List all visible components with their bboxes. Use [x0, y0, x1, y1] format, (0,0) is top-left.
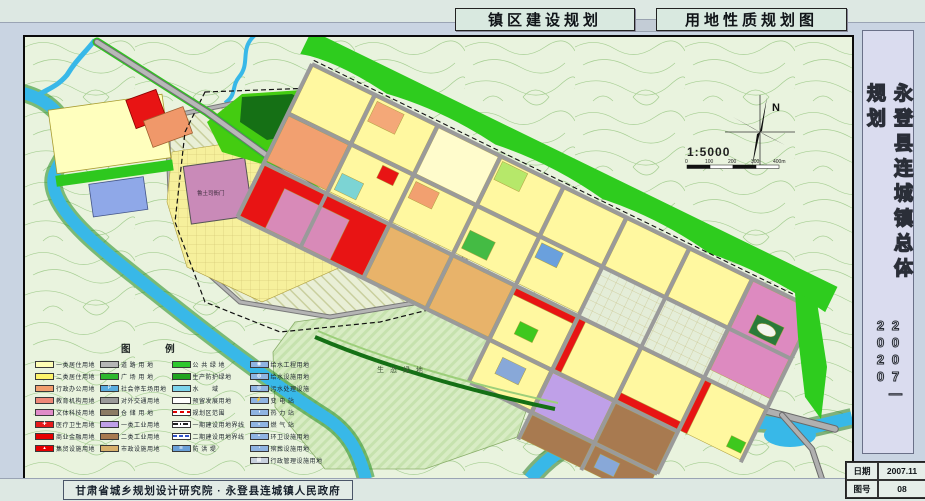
legend-label: 燃 气 站	[271, 420, 295, 429]
legend-columns: 一类居住用地二类居住用地行政办公用地教育机构用地文体科技用地✚医疗卫生用地商业金…	[35, 359, 335, 465]
legend-swatch: ◓	[250, 433, 269, 440]
sheet-value: 08	[878, 480, 925, 498]
legend-swatch: ▦	[250, 457, 269, 464]
legend-item: 文体科技用地	[35, 407, 95, 417]
legend-column: ◉给水工程用地◍给水设施用地◎污水处理设施⚡变 电 站◑热 力 站◒燃 气 站◓…	[250, 359, 323, 465]
legend-swatch	[172, 433, 191, 440]
legend-label: 热 力 站	[271, 408, 295, 417]
legend-column: 一类居住用地二类居住用地行政办公用地教育机构用地文体科技用地✚医疗卫生用地商业金…	[35, 359, 95, 465]
legend-item: 仓 储 用 地	[100, 407, 167, 417]
legend-item: 教育机构用地	[35, 395, 95, 405]
legend-swatch: ◒	[250, 421, 269, 428]
legend-label: 防 洪 堤	[193, 444, 217, 453]
legend-swatch: ◉	[250, 361, 269, 368]
legend-swatch	[100, 421, 119, 428]
legend-item: ◎污水处理设施	[250, 383, 323, 393]
sidebar: 永登县连城镇总体规划 2007—2020	[862, 30, 914, 454]
legend-label: 殡葬设施用地	[271, 444, 310, 453]
legend-label: 一类居住用地	[56, 360, 95, 369]
legend-swatch	[100, 361, 119, 368]
legend-label: 文体科技用地	[56, 408, 95, 417]
plan-period: 2007—2020	[873, 318, 903, 453]
legend-item: 市政设施用地	[100, 443, 167, 453]
legend-swatch: ◑	[250, 409, 269, 416]
legend-label: 社会停车场用地	[121, 384, 167, 393]
legend-column: 道 路 用 地广 场 用 地P社会停车场用地对外交通用地仓 储 用 地一类工业用…	[100, 359, 167, 465]
legend-item: ◍给水设施用地	[250, 371, 323, 381]
legend-item: 一类居住用地	[35, 359, 95, 369]
legend-label: 预留发展用地	[193, 396, 232, 405]
legend-swatch: ▴	[35, 445, 54, 452]
legend-item: 二类居住用地	[35, 371, 95, 381]
legend-swatch	[100, 409, 119, 416]
legend-item: 商业金融用地	[35, 431, 95, 441]
legend-swatch	[100, 433, 119, 440]
legend-swatch	[100, 397, 119, 404]
scale-tick: 0	[685, 159, 688, 165]
scale-ratio: 1:5000	[687, 145, 730, 159]
legend-label: 广 场 用 地	[121, 372, 154, 381]
legend-swatch	[172, 409, 191, 416]
credit-box: 甘肃省城乡规划设计研究院 · 永登县连城镇人民政府	[63, 480, 353, 500]
page-title-right: 用地性质规划图	[656, 8, 847, 31]
legend-label: 行政管理设施用地	[271, 456, 323, 465]
legend-swatch: ◔	[250, 445, 269, 452]
legend-item: ◓环卫设施用地	[250, 431, 323, 441]
legend-swatch	[100, 445, 119, 452]
legend-label: 二期建设用地界线	[193, 432, 245, 441]
scale-tick: 200	[728, 159, 737, 165]
legend-item: 公 共 绿 地	[172, 359, 245, 369]
legend: 图 例 一类居住用地二类居住用地行政办公用地教育机构用地文体科技用地✚医疗卫生用…	[35, 341, 335, 465]
north-label: N	[772, 102, 780, 114]
legend-label: 集贸设施用地	[56, 444, 95, 453]
legend-label: 教育机构用地	[56, 396, 95, 405]
legend-label: 给水设施用地	[271, 372, 310, 381]
legend-label: 环卫设施用地	[271, 432, 310, 441]
legend-swatch: ◎	[250, 385, 269, 392]
eco-green-label: 生 态 绿 地	[377, 365, 425, 374]
legend-item: 水 域	[172, 383, 245, 393]
legend-item: 广 场 用 地	[100, 371, 167, 381]
legend-swatch: ✚	[35, 421, 54, 428]
scale-tick: 400m	[773, 159, 786, 165]
page-title-left: 镇区建设规划	[455, 8, 635, 31]
legend-label: 变 电 站	[271, 396, 295, 405]
planning-sheet: { "header": { "title_left": "镇区建设规划", "t…	[0, 0, 925, 500]
legend-item: ◑热 力 站	[250, 407, 323, 417]
legend-swatch	[35, 385, 54, 392]
legend-label: 水 域	[193, 384, 219, 393]
legend-label: 道 路 用 地	[121, 360, 154, 369]
legend-item: 规划区范围	[172, 407, 245, 417]
legend-item: 一期建设用地界线	[172, 419, 245, 429]
legend-item: ◉给水工程用地	[250, 359, 323, 369]
legend-label: 二类工业用地	[121, 432, 160, 441]
legend-swatch	[172, 421, 191, 428]
legend-swatch: P	[100, 385, 119, 392]
legend-swatch	[35, 433, 54, 440]
legend-swatch: ⚡	[250, 397, 269, 404]
legend-swatch	[172, 373, 191, 380]
legend-item: P社会停车场用地	[100, 383, 167, 393]
legend-item: 道 路 用 地	[100, 359, 167, 369]
legend-label: 给水工程用地	[271, 360, 310, 369]
legend-swatch: ◍	[250, 373, 269, 380]
legend-item: 行政办公用地	[35, 383, 95, 393]
legend-item: ◒燃 气 站	[250, 419, 323, 429]
legend-label: 医疗卫生用地	[56, 420, 95, 429]
legend-label: 公 共 绿 地	[193, 360, 226, 369]
title-block: 日期 2007.11 图号 08	[845, 461, 925, 499]
legend-item: ⚡变 电 站	[250, 395, 323, 405]
legend-label: 仓 储 用 地	[121, 408, 154, 417]
legend-item: 对外交通用地	[100, 395, 167, 405]
legend-label: 二类居住用地	[56, 372, 95, 381]
legend-item: 预留发展用地	[172, 395, 245, 405]
legend-label: 生产防护绿地	[193, 372, 232, 381]
legend-label: 一类工业用地	[121, 420, 160, 429]
legend-item: ▦行政管理设施用地	[250, 455, 323, 465]
legend-label: 商业金融用地	[56, 432, 95, 441]
legend-label: 市政设施用地	[121, 444, 160, 453]
legend-item: 生产防护绿地	[172, 371, 245, 381]
legend-swatch	[35, 373, 54, 380]
legend-swatch	[172, 397, 191, 404]
legend-item: ▴集贸设施用地	[35, 443, 95, 453]
legend-swatch	[35, 361, 54, 368]
legend-label: 一期建设用地界线	[193, 420, 245, 429]
legend-label: 污水处理设施	[271, 384, 310, 393]
legend-swatch	[35, 409, 54, 416]
legend-swatch	[172, 361, 191, 368]
title-connector	[633, 19, 658, 32]
date-value: 2007.11	[878, 462, 925, 480]
date-label: 日期	[846, 462, 878, 480]
legend-item: 二类工业用地	[100, 431, 167, 441]
legend-label: 对外交通用地	[121, 396, 160, 405]
scale-tick: 300	[751, 159, 760, 165]
legend-item: 二期建设用地界线	[172, 431, 245, 441]
legend-column: 公 共 绿 地生产防护绿地水 域预留发展用地规划区范围一期建设用地界线二期建设用…	[172, 359, 245, 465]
legend-swatch	[35, 397, 54, 404]
drawing-set-title: 永登县连城镇总体规划	[861, 83, 915, 304]
legend-swatch	[100, 373, 119, 380]
legend-title: 图 例	[121, 341, 335, 355]
legend-item: ✚医疗卫生用地	[35, 419, 95, 429]
scale-tick: 100	[705, 159, 714, 165]
heritage-label: 鲁土司衙门	[197, 189, 225, 197]
legend-item: ≋防 洪 堤	[172, 443, 245, 453]
legend-swatch: ≋	[172, 445, 191, 452]
planning-map: N 1:5000 0 100 200 300 400m 鲁土司衙门 生 态 绿 …	[23, 35, 854, 481]
legend-label: 行政办公用地	[56, 384, 95, 393]
sheet-label: 图号	[846, 480, 878, 498]
legend-item: 一类工业用地	[100, 419, 167, 429]
legend-item: ◔殡葬设施用地	[250, 443, 323, 453]
legend-swatch	[172, 385, 191, 392]
legend-label: 规划区范围	[193, 408, 226, 417]
